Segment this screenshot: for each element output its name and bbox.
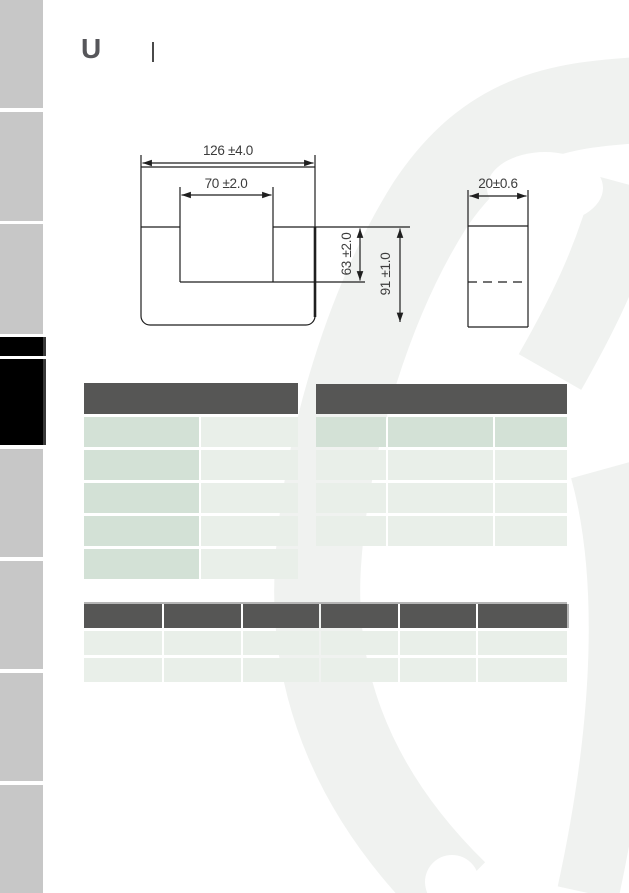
table-cell bbox=[316, 516, 386, 546]
table-cell bbox=[164, 658, 241, 682]
table-cell bbox=[84, 483, 199, 513]
sidebar-tab-6 bbox=[0, 449, 43, 557]
dim-thickness: 20±0.6 bbox=[478, 176, 517, 191]
table-body bbox=[84, 417, 298, 579]
watermark-arc-lower-right bbox=[588, 470, 620, 893]
table-cell bbox=[84, 658, 162, 682]
table-cell bbox=[321, 658, 398, 682]
table-cell bbox=[243, 658, 319, 682]
table-cell bbox=[478, 658, 567, 682]
dim-window-width: 70 ±2.0 bbox=[205, 176, 248, 191]
table-cell bbox=[164, 631, 241, 655]
sidebar-tab-7 bbox=[0, 561, 43, 669]
sidebar-tab-8 bbox=[0, 673, 43, 781]
watermark-arc-upper-right bbox=[550, 185, 629, 372]
table-header-cell bbox=[321, 604, 398, 628]
dim-overall-width: 126 ±4.0 bbox=[203, 143, 253, 158]
table-header-cell bbox=[478, 604, 567, 628]
table-cell bbox=[201, 549, 298, 579]
table-cell bbox=[84, 516, 199, 546]
table-right bbox=[316, 384, 567, 546]
table-cell bbox=[495, 450, 567, 480]
table-cell bbox=[478, 631, 567, 655]
table-header-cell bbox=[164, 604, 241, 628]
table-cell bbox=[201, 417, 298, 447]
sidebar-tab-9 bbox=[0, 785, 43, 893]
table-cell bbox=[388, 417, 493, 447]
table-cell bbox=[316, 483, 386, 513]
series-letter: U bbox=[81, 33, 101, 65]
table-header-cell bbox=[84, 604, 162, 628]
table-cell bbox=[84, 417, 199, 447]
table-body bbox=[316, 417, 567, 546]
table-cell bbox=[84, 450, 199, 480]
sidebar-tab-1 bbox=[0, 0, 43, 108]
table-bottom bbox=[84, 602, 567, 682]
table-cell bbox=[84, 631, 162, 655]
dim-window-depth: 63 ±2.0 bbox=[339, 233, 354, 276]
sidebar-tab-3 bbox=[0, 224, 43, 334]
table-header-cell bbox=[400, 604, 476, 628]
table-body bbox=[84, 631, 567, 682]
front-view bbox=[141, 155, 410, 325]
table-cell bbox=[243, 631, 319, 655]
table-cell bbox=[316, 450, 386, 480]
table-cell bbox=[201, 450, 298, 480]
table-cell bbox=[201, 483, 298, 513]
table-left bbox=[84, 383, 298, 579]
table-cell bbox=[495, 417, 567, 447]
table-cell bbox=[388, 516, 493, 546]
sidebar-tab-2 bbox=[0, 112, 43, 221]
table-cell bbox=[201, 516, 298, 546]
watermark-notch-bottom bbox=[425, 855, 479, 893]
table-cell bbox=[388, 450, 493, 480]
table-header-bar bbox=[316, 384, 567, 414]
table-cell bbox=[388, 483, 493, 513]
table-header-cell bbox=[243, 604, 319, 628]
watermark-notch-top bbox=[487, 152, 603, 224]
sidebar-tab-5-active bbox=[0, 359, 46, 445]
table-cell bbox=[316, 417, 386, 447]
table-cell bbox=[84, 549, 199, 579]
datasheet-page: U bbox=[0, 0, 629, 893]
sidebar-tab-4-active bbox=[0, 337, 46, 356]
table-cell bbox=[400, 658, 476, 682]
dimension-labels: 126 ±4.0 70 ±2.0 63 ±2.0 91 ±1.0 20±0.6 bbox=[203, 143, 518, 295]
table-cell bbox=[321, 631, 398, 655]
header-divider bbox=[152, 42, 154, 62]
table-header-row bbox=[84, 602, 567, 628]
dim-overall-height: 91 ±1.0 bbox=[378, 253, 393, 296]
table-cell bbox=[495, 516, 567, 546]
table-header-bar bbox=[84, 383, 298, 414]
table-cell bbox=[495, 483, 567, 513]
table-cell bbox=[400, 631, 476, 655]
side-view bbox=[468, 190, 528, 327]
